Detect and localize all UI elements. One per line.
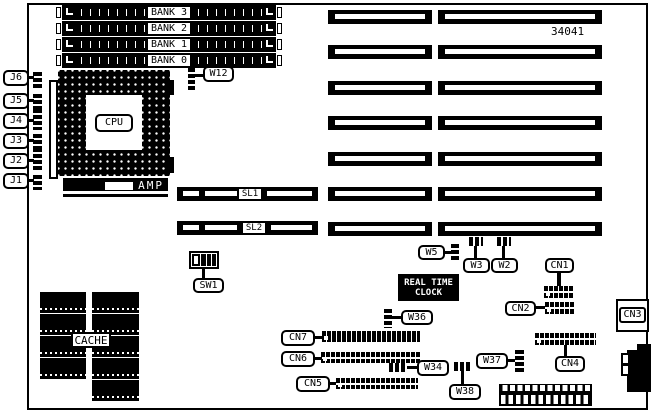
cn7-label: CN7 <box>281 330 315 346</box>
simm-end <box>56 55 61 66</box>
w38-leader <box>461 371 464 384</box>
w38-label: W38 <box>449 384 481 400</box>
cn2-leader <box>536 306 545 309</box>
sw1-leader <box>202 269 205 278</box>
w34-leader <box>407 366 417 369</box>
rtc-chip: REAL TIME CLOCK <box>398 274 459 301</box>
sw1-cell <box>212 254 216 266</box>
cn4-label: CN4 <box>555 356 585 372</box>
cpu-die-area: CPU <box>86 95 142 150</box>
cpu-socket: CPU <box>58 70 170 176</box>
simm-socket-bank1: BANK 1 <box>56 37 282 52</box>
w5-label: W5 <box>418 245 445 260</box>
simm-end <box>56 23 61 34</box>
cn6-label: CN6 <box>281 351 315 367</box>
socket-tab <box>169 80 174 95</box>
cn1-label: CN1 <box>545 258 574 273</box>
expansion-slot <box>438 45 602 59</box>
simm-end <box>277 39 282 50</box>
j6-pins <box>33 72 42 90</box>
w34-pins <box>389 363 407 372</box>
simm-clip-icon <box>62 53 76 68</box>
cpu-retainer: AMP <box>63 178 168 197</box>
sl2-bar: SL2 <box>177 221 318 235</box>
cn4-header <box>535 333 596 345</box>
j3-label: J3 <box>3 133 29 149</box>
motherboard-diagram: 34041 BANK 3 BANK 2 BANK 1 BANK 0 C <box>0 0 651 415</box>
simm-clip-icon <box>62 5 76 20</box>
power-connector-pins <box>499 384 592 393</box>
w37-leader <box>508 359 515 362</box>
rtc-line2: CLOCK <box>415 288 442 298</box>
j1-pins <box>33 175 42 190</box>
w12-pins <box>188 68 195 90</box>
bank3-label: BANK 3 <box>146 5 192 20</box>
din-pin <box>623 366 628 374</box>
simm-end <box>56 7 61 18</box>
sw1-cell <box>207 254 211 266</box>
sw1-dip-switch <box>189 251 219 269</box>
sl1-bar: SL1 <box>177 187 318 201</box>
part-number: 34041 <box>551 26 584 37</box>
w37-pins <box>515 350 524 372</box>
simm-clip-icon <box>262 53 276 68</box>
expansion-slot <box>328 81 432 95</box>
cn5-leader <box>330 382 336 385</box>
cn2-header <box>545 302 574 314</box>
w3-pins <box>469 237 483 246</box>
cn7-leader <box>315 336 322 339</box>
cpu-label: CPU <box>95 114 133 132</box>
cache-chip <box>92 292 139 313</box>
w2-label: W2 <box>491 258 518 273</box>
expansion-slot <box>438 222 602 236</box>
simm-clip-icon <box>62 37 76 52</box>
sl1-seg <box>267 191 312 196</box>
expansion-slot <box>328 152 432 166</box>
j2-label: J2 <box>3 153 29 169</box>
j4-pins <box>33 109 42 130</box>
w2-pins <box>497 237 511 246</box>
w38-pins <box>454 362 472 371</box>
sl2-label: SL2 <box>241 221 267 235</box>
sw1-label: SW1 <box>193 278 224 293</box>
simm-end <box>277 7 282 18</box>
din-body <box>627 350 651 392</box>
j6-label: J6 <box>3 70 29 86</box>
w37-label: W37 <box>476 353 508 369</box>
cn5-header <box>336 378 418 389</box>
j5-pins <box>33 94 42 109</box>
w2-leader <box>502 246 505 258</box>
w3-label: W3 <box>463 258 490 273</box>
cn6-leader <box>315 357 322 360</box>
simm-end <box>277 23 282 34</box>
w12-label: W12 <box>203 66 234 82</box>
sl1-seg <box>205 191 237 196</box>
socket-tab <box>169 157 174 173</box>
w36-pins <box>384 309 392 328</box>
cache-chip <box>40 358 86 379</box>
cn3-label: CN3 <box>619 307 646 323</box>
bank0-label: BANK 0 <box>146 53 192 68</box>
simm-clip-icon <box>262 5 276 20</box>
cn7-header <box>322 331 420 342</box>
cache-chip <box>92 380 139 401</box>
bank1-label: BANK 1 <box>146 37 192 52</box>
simm-socket-bank2: BANK 2 <box>56 21 282 36</box>
bank2-label: BANK 2 <box>146 21 192 36</box>
cache-chip <box>92 358 139 379</box>
amp-label: AMP <box>138 179 164 192</box>
cn6-header <box>321 352 420 363</box>
expansion-slot <box>438 10 602 24</box>
w36-label: W36 <box>401 310 433 325</box>
cn5-label: CN5 <box>296 376 330 392</box>
cn4-leader <box>564 345 567 356</box>
expansion-slot <box>328 45 432 59</box>
j1-label: J1 <box>3 173 29 189</box>
simm-socket-bank3: BANK 3 <box>56 5 282 20</box>
sl1-label: SL1 <box>237 187 263 201</box>
w5-pins <box>451 244 459 260</box>
expansion-slot <box>438 116 602 130</box>
expansion-slot <box>328 116 432 130</box>
j5-label: J5 <box>3 93 29 109</box>
expansion-slot <box>438 152 602 166</box>
rtc-line1: REAL TIME <box>404 278 453 288</box>
simm-clip-icon <box>62 21 76 36</box>
cn1-leader <box>557 273 561 286</box>
keyboard-connector <box>621 344 651 394</box>
sl2-seg <box>183 225 199 230</box>
power-connector-body <box>499 393 592 406</box>
w34-label: W34 <box>417 360 449 376</box>
sl1-seg <box>183 191 199 196</box>
j4-label: J4 <box>3 113 29 129</box>
expansion-slot <box>438 187 602 201</box>
cache-label: CACHE <box>71 332 111 348</box>
cn1-header <box>544 286 574 298</box>
retainer-rail <box>63 194 168 197</box>
w36-leader <box>392 316 401 319</box>
cpu-side-slot <box>49 80 58 179</box>
j2-pins <box>33 148 42 171</box>
expansion-slot <box>438 81 602 95</box>
simm-socket-bank0: BANK 0 <box>56 53 282 68</box>
expansion-slot <box>328 187 432 201</box>
w3-leader <box>474 246 477 258</box>
sw1-cell <box>201 254 205 266</box>
cn2-label: CN2 <box>505 301 536 316</box>
simm-end <box>277 55 282 66</box>
expansion-slot <box>328 10 432 24</box>
retainer-window <box>105 182 133 190</box>
expansion-slot <box>328 222 432 236</box>
j3-pins <box>33 134 42 149</box>
sw1-cell <box>192 254 200 266</box>
simm-clip-icon <box>262 37 276 52</box>
sl2-seg <box>271 225 312 230</box>
w5-leader <box>444 251 451 254</box>
simm-clip-icon <box>262 21 276 36</box>
cache-chip <box>40 292 86 313</box>
simm-end <box>56 39 61 50</box>
din-pin <box>623 355 628 363</box>
sl2-seg <box>205 225 237 230</box>
